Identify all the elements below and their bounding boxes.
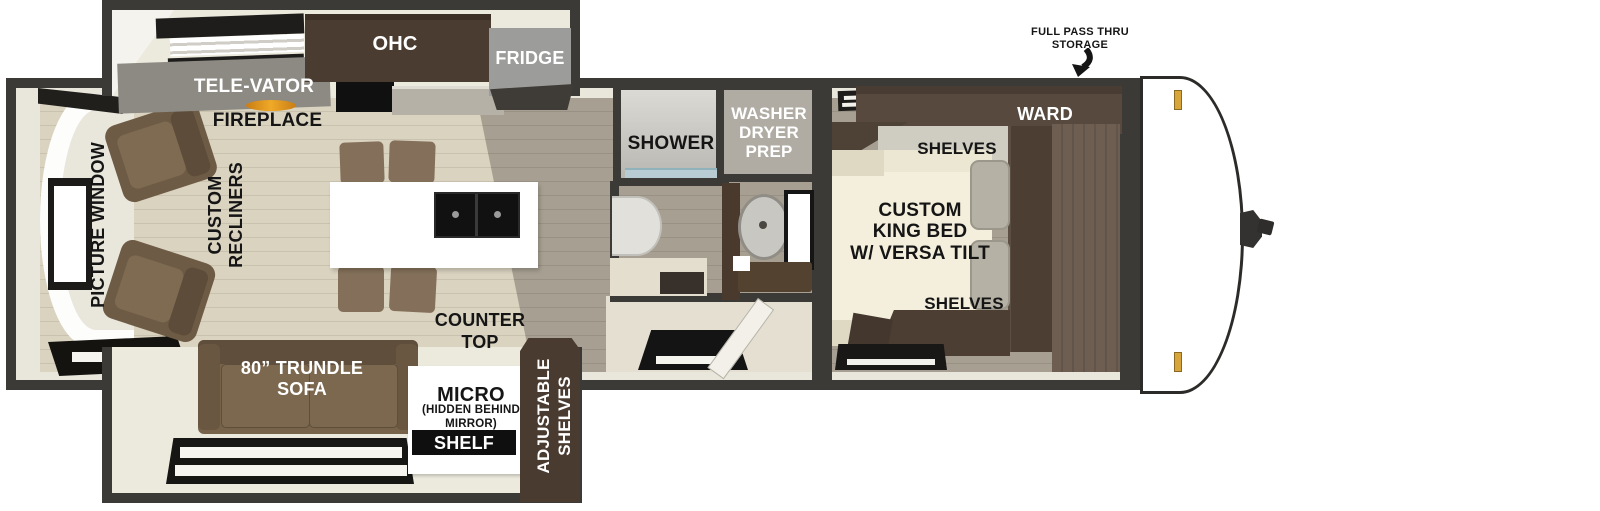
island-chair-top-right xyxy=(388,140,435,184)
picture-window-label: PICTURE WINDOW xyxy=(88,120,112,330)
sofa-slide-window xyxy=(166,438,414,484)
clearance-light-top xyxy=(1174,90,1182,110)
micro-note-label: (HIDDEN BEHIND MIRROR) xyxy=(404,404,538,432)
shower-towel-bar xyxy=(625,168,717,178)
ward-side-panel xyxy=(1052,124,1120,372)
bed-step-top xyxy=(832,150,884,176)
picture-window-glass xyxy=(54,186,86,282)
custom-recliners-label: CUSTOM RECLINERS xyxy=(205,130,251,300)
sink-divider xyxy=(475,194,478,236)
bath-sink xyxy=(612,196,662,256)
shelf-label: SHELF xyxy=(412,433,516,453)
full-pass-thru-arrow xyxy=(1062,48,1096,78)
sofa-slide-window-slat1 xyxy=(180,447,402,458)
bedroom-entry-mat-stripe xyxy=(847,359,935,365)
washer-dryer-label: WASHER DRYER PREP xyxy=(712,104,826,162)
front-cap xyxy=(1140,76,1244,394)
adjustable-shelves-label: ADJUSTABLE SHELVES xyxy=(533,336,579,496)
island-chair-bottom-left xyxy=(338,266,384,312)
floorplan-canvas: PICTURE WINDOW CUSTOM RECLINERS OHC FRID… xyxy=(0,0,1600,511)
toilet-flush-button xyxy=(759,221,767,229)
ohc-label: OHC xyxy=(350,33,440,55)
sink-drain-right xyxy=(494,211,501,218)
fridge-label: FRIDGE xyxy=(488,48,572,68)
shelves-top-label: SHELVES xyxy=(894,139,1020,158)
shower-label: SHOWER xyxy=(614,133,728,154)
picture-window-frame xyxy=(48,178,92,290)
sofa-arm-left xyxy=(198,344,220,430)
bath-mirror xyxy=(784,190,814,270)
bedroom-entry-mat xyxy=(835,344,947,370)
trundle-sofa-label: 80” TRUNDLE SOFA xyxy=(222,358,382,399)
bath-cabinet-dark xyxy=(660,272,704,294)
sink-drain-left xyxy=(452,211,459,218)
king-bed-label: CUSTOM KING BED W/ VERSA TILT xyxy=(830,200,1010,264)
island-sink xyxy=(434,192,520,238)
toilet-paper-holder xyxy=(733,256,750,271)
kitchen-counter xyxy=(392,86,504,115)
island-chair-top-left xyxy=(339,141,384,185)
toilet-bowl xyxy=(738,194,790,260)
televator-label: TELE-VATOR xyxy=(188,76,320,97)
island-chair-bottom-right xyxy=(389,265,437,313)
ward-divider-column xyxy=(1008,126,1055,352)
clearance-light-bottom xyxy=(1174,352,1182,372)
sofa-slide-window-slat2 xyxy=(175,465,407,476)
ward-label: WARD xyxy=(995,104,1095,124)
shelves-bottom-label: SHELVES xyxy=(901,294,1027,313)
counter-top-label: COUNTER TOP xyxy=(415,310,545,353)
fireplace-label: FIREPLACE xyxy=(200,110,335,131)
